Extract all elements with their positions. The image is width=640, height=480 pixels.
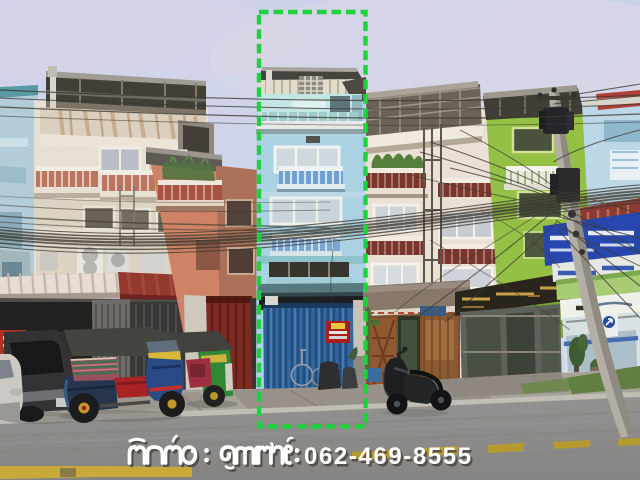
svg-text:062-469-8555: 062-469-8555 [304, 443, 473, 470]
